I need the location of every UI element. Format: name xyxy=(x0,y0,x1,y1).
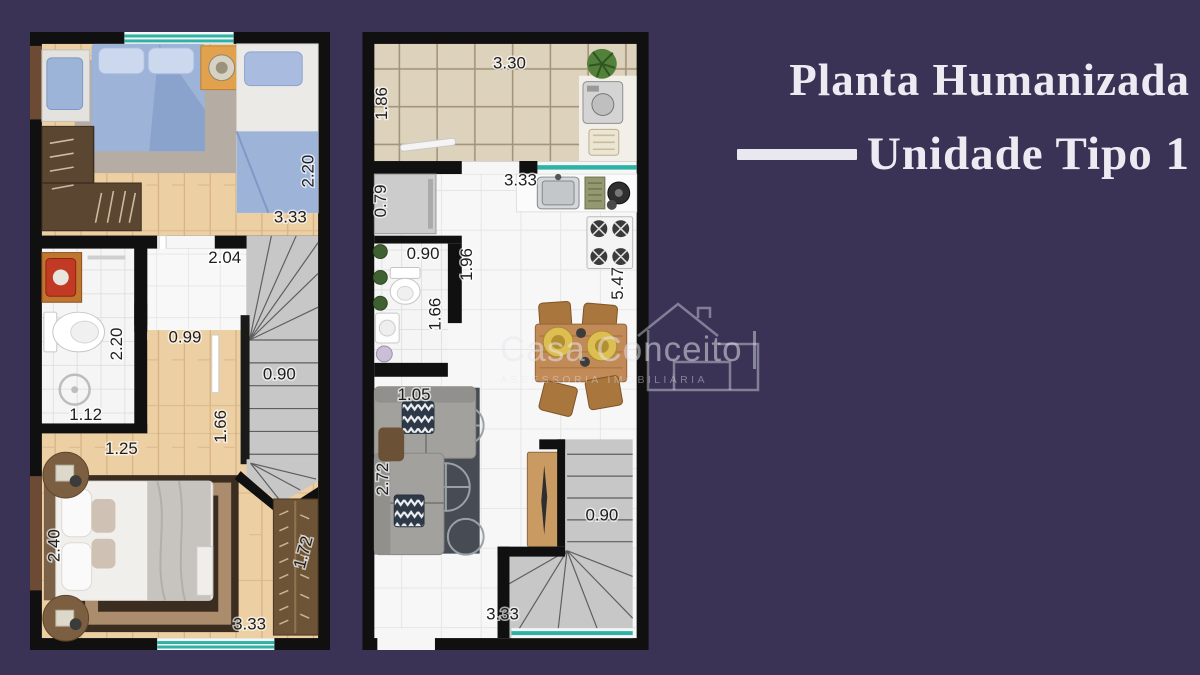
measurement-label: 1.12 xyxy=(69,405,102,424)
watermark-separator xyxy=(753,331,756,369)
laundry-basket xyxy=(589,129,619,155)
measurement-label: 1.66 xyxy=(425,298,444,331)
measurement-label: 3.33 xyxy=(274,207,307,226)
zigzag-pillow xyxy=(394,495,424,527)
double-bed xyxy=(92,44,205,151)
floorplan-poster: 2.203.332.042.200.990.901.121.661.252.40… xyxy=(0,0,1200,675)
measurement-label: 1.66 xyxy=(211,410,230,443)
entry-door xyxy=(377,628,435,650)
bed-master xyxy=(44,481,213,600)
stove xyxy=(587,217,633,269)
title-dash xyxy=(737,149,857,160)
measurement-label: 2.20 xyxy=(107,328,126,361)
kitchen-sink xyxy=(537,174,579,209)
measurement-label: 1.25 xyxy=(105,439,138,458)
measurement-label: 0.99 xyxy=(169,327,202,346)
house-outline-icon xyxy=(634,298,794,402)
bench xyxy=(42,50,90,122)
measurement-label: 0.90 xyxy=(407,244,440,263)
window xyxy=(124,32,233,44)
page-subtitle: Unidade Tipo 1 xyxy=(676,130,1190,179)
hamper xyxy=(376,346,392,362)
dish-rack xyxy=(585,177,605,209)
measurement-label: 1.96 xyxy=(457,248,476,281)
measurement-label: 2.40 xyxy=(44,529,63,562)
console-table xyxy=(527,452,561,546)
measurement-label: 0.90 xyxy=(585,505,618,524)
sink xyxy=(375,313,399,343)
upper-floor-plan: 2.203.332.042.200.990.901.121.661.252.40… xyxy=(28,32,332,650)
measurement-label: 3.33 xyxy=(233,615,266,634)
window xyxy=(511,628,632,638)
toilet xyxy=(44,312,105,352)
zigzag-pillow xyxy=(402,402,434,434)
bedside-bench xyxy=(197,547,213,596)
measurement-label: 3.33 xyxy=(486,605,519,624)
title-block: Planta Humanizada Unidade Tipo 1 xyxy=(676,56,1190,179)
side-table xyxy=(43,452,89,498)
throw-pillow xyxy=(378,427,404,461)
measurement-label: 5.47 xyxy=(608,267,627,300)
side-table xyxy=(43,595,89,641)
measurement-label: 2.20 xyxy=(299,155,318,188)
measurement-label: 1.05 xyxy=(398,385,431,404)
ground-floor-plan: 3.301.860.793.330.901.961.665.471.052.72… xyxy=(362,32,649,650)
plant xyxy=(587,49,617,79)
measurement-label: 3.30 xyxy=(493,53,526,72)
measurement-label: 0.90 xyxy=(263,364,296,383)
page-title: Planta Humanizada xyxy=(676,56,1190,106)
window xyxy=(157,638,274,650)
plants xyxy=(373,245,387,311)
measurement-label: 1.86 xyxy=(372,87,391,120)
measurement-label: 2.72 xyxy=(373,463,392,496)
measurement-label: 2.04 xyxy=(208,248,241,267)
toilet xyxy=(390,267,420,304)
measurement-label: 0.79 xyxy=(371,184,390,217)
measurement-label: 3.33 xyxy=(504,171,537,190)
vanity xyxy=(42,253,82,303)
washing-machine xyxy=(583,82,623,124)
